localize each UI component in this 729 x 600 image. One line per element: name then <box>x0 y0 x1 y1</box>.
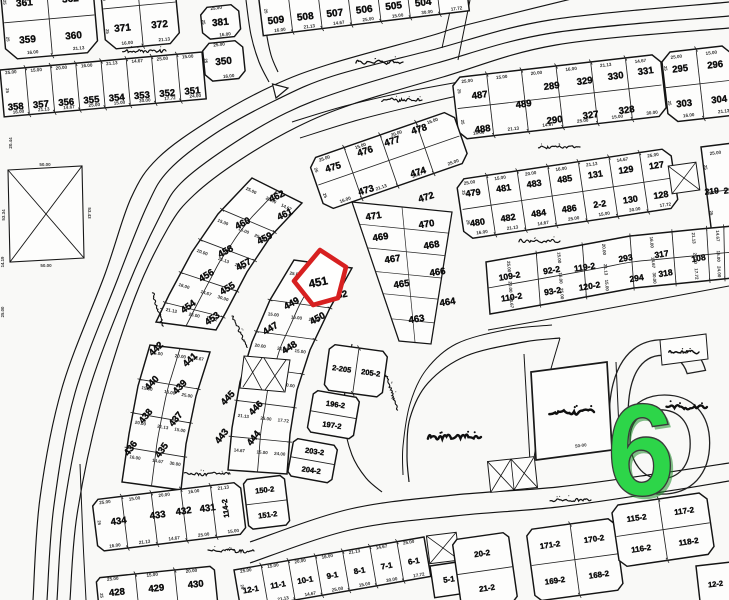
svg-text:21.13: 21.13 <box>73 45 85 51</box>
svg-text:21.13: 21.13 <box>691 232 697 244</box>
svg-text:213: 213 <box>723 184 729 195</box>
svg-text:304: 304 <box>711 94 729 107</box>
svg-text:20.44: 20.44 <box>8 137 13 149</box>
svg-text:30.00: 30.00 <box>139 97 151 103</box>
svg-text:15.00: 15.00 <box>604 279 610 291</box>
svg-text:50.00: 50.00 <box>39 162 51 167</box>
svg-text:53.34: 53.34 <box>1 209 6 221</box>
svg-text:17.72: 17.72 <box>164 95 176 101</box>
svg-text:15.00: 15.00 <box>30 67 42 73</box>
svg-text:25.00: 25.00 <box>156 56 168 62</box>
svg-text:25.00: 25.00 <box>88 102 100 108</box>
svg-text:24.00: 24.00 <box>716 266 721 278</box>
svg-text:429: 429 <box>148 582 165 595</box>
svg-text:507: 507 <box>326 7 344 20</box>
svg-text:360: 360 <box>65 30 83 42</box>
svg-text:15.00: 15.00 <box>182 53 194 59</box>
svg-text:5-1: 5-1 <box>443 574 456 585</box>
svg-text:428: 428 <box>109 586 126 599</box>
svg-text:24.00: 24.00 <box>189 93 201 99</box>
svg-text:21.13: 21.13 <box>106 60 118 66</box>
svg-text:24.00: 24.00 <box>274 451 286 457</box>
svg-text:434: 434 <box>110 515 128 528</box>
svg-text:303: 303 <box>676 98 693 111</box>
svg-text:25.00: 25.00 <box>5 69 17 75</box>
svg-text:16.00: 16.00 <box>558 272 564 284</box>
svg-text:30.00: 30.00 <box>652 272 658 284</box>
svg-text:331: 331 <box>637 65 655 78</box>
svg-text:371: 371 <box>114 22 132 35</box>
svg-text:25.00: 25.00 <box>0 306 5 317</box>
svg-text:219: 219 <box>704 185 719 196</box>
svg-text:328: 328 <box>618 104 635 117</box>
svg-text:295: 295 <box>672 63 690 76</box>
svg-text:12-2: 12-2 <box>708 579 724 590</box>
svg-text:381: 381 <box>212 17 230 30</box>
svg-text:359: 359 <box>19 34 37 46</box>
svg-text:15.00: 15.00 <box>556 252 562 264</box>
svg-text:16.00: 16.00 <box>81 62 93 68</box>
svg-text:21.13: 21.13 <box>277 595 290 600</box>
svg-text:15.00: 15.00 <box>256 449 268 455</box>
svg-text:372: 372 <box>151 19 169 32</box>
svg-text:14.19: 14.19 <box>0 256 5 267</box>
svg-text:16.00: 16.00 <box>27 49 39 55</box>
svg-text:14.67: 14.67 <box>63 104 75 110</box>
svg-text:16.00: 16.00 <box>13 109 25 115</box>
svg-text:20.00: 20.00 <box>55 65 67 71</box>
svg-text:330: 330 <box>607 70 624 83</box>
svg-text:509: 509 <box>267 14 285 27</box>
svg-text:329: 329 <box>576 75 593 88</box>
svg-text:431: 431 <box>199 502 217 515</box>
svg-text:14.67: 14.67 <box>715 230 720 242</box>
svg-text:15.00: 15.00 <box>716 250 721 262</box>
svg-text:290: 290 <box>546 114 563 127</box>
svg-text:327: 327 <box>582 109 599 122</box>
svg-text:489: 489 <box>515 98 532 111</box>
svg-text:15.00: 15.00 <box>114 100 126 106</box>
svg-text:296: 296 <box>707 59 724 72</box>
svg-text:433: 433 <box>149 509 166 522</box>
svg-text:508: 508 <box>296 11 314 24</box>
svg-text:289: 289 <box>543 80 560 93</box>
svg-text:488: 488 <box>474 123 491 136</box>
svg-text:21.13: 21.13 <box>603 264 609 276</box>
svg-text:21.13: 21.13 <box>38 106 50 112</box>
svg-text:361: 361 <box>16 0 34 10</box>
svg-text:505: 505 <box>385 0 403 13</box>
svg-text:487: 487 <box>471 89 488 102</box>
svg-text:14.67: 14.67 <box>234 447 246 453</box>
svg-text:506: 506 <box>355 4 373 17</box>
svg-text:430: 430 <box>187 578 204 591</box>
svg-text:432: 432 <box>175 505 192 518</box>
svg-text:6: 6 <box>607 376 675 523</box>
svg-text:53.43: 53.43 <box>87 207 92 219</box>
svg-text:17.72: 17.72 <box>694 268 700 280</box>
svg-text:2-2: 2-2 <box>593 198 607 210</box>
svg-text:16.00: 16.00 <box>649 236 655 248</box>
svg-text:20.00: 20.00 <box>601 244 607 256</box>
svg-text:350: 350 <box>215 56 233 69</box>
svg-text:50.00: 50.00 <box>40 263 52 268</box>
svg-text:14.67: 14.67 <box>131 58 143 64</box>
